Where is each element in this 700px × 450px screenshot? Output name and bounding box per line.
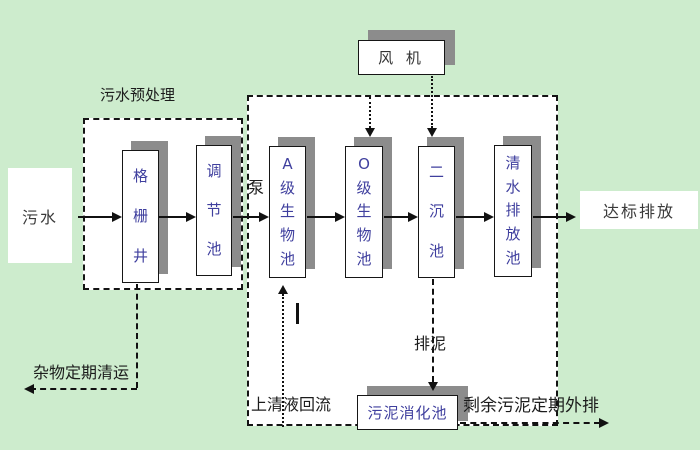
supernatant-return-head bbox=[278, 285, 288, 294]
arrow-a-to-o-head bbox=[335, 212, 345, 222]
arrow-grid-to-regulating-head bbox=[186, 212, 196, 222]
pipe-tick-mark bbox=[296, 303, 299, 324]
debris-removal-hline bbox=[30, 388, 137, 390]
arrow-grid-to-regulating-line bbox=[159, 216, 187, 218]
excess-sludge-label: 剩余污泥定期外排 bbox=[463, 397, 599, 417]
excess-sludge-head bbox=[599, 418, 609, 428]
supernatant-return-label: 上清液回流 bbox=[251, 396, 331, 414]
air-line-to-o-bio bbox=[369, 97, 371, 128]
arrow-clarifier-to-clearwater-head bbox=[484, 212, 494, 222]
arrow-regulating-to-a-line bbox=[233, 216, 260, 218]
pump-label: 泵 bbox=[248, 179, 264, 197]
air-line-to-clarifier bbox=[431, 76, 433, 128]
air-line-to-o-bio-head bbox=[365, 128, 375, 137]
arrow-influent-to-grid-line bbox=[78, 216, 113, 218]
arrow-clearwater-to-discharge-head bbox=[566, 212, 576, 222]
tank-grid-well: 格栅井 bbox=[122, 150, 159, 283]
process-flow-diagram: 污水预处理 污水 达标排放 风 机 格栅井 调节池 A级生物池 O级生物池 二沉… bbox=[0, 0, 700, 450]
debris-removal-label: 杂物定期清运 bbox=[33, 364, 129, 382]
sludge-drain-label: 排泥 bbox=[414, 335, 446, 353]
tank-sludge-digester: 污泥消化池 bbox=[357, 395, 458, 430]
arrow-o-to-clarifier-line bbox=[384, 216, 409, 218]
sludge-drain-head bbox=[428, 382, 438, 391]
influent-box: 污水 bbox=[8, 168, 72, 263]
arrow-a-to-o-line bbox=[307, 216, 336, 218]
sludge-drain-line bbox=[432, 279, 434, 382]
tank-clear-water: 清水排放池 bbox=[494, 145, 532, 277]
discharge-box: 达标排放 bbox=[580, 191, 698, 229]
tank-a-bio: A级生物池 bbox=[269, 146, 306, 278]
arrow-influent-to-grid-head bbox=[112, 212, 122, 222]
air-line-to-clarifier-head bbox=[427, 128, 437, 137]
debris-removal-vline bbox=[136, 284, 138, 388]
arrow-o-to-clarifier-head bbox=[408, 212, 418, 222]
blower-box: 风 机 bbox=[358, 40, 445, 75]
debris-removal-head bbox=[24, 384, 34, 394]
tank-o-bio: O级生物池 bbox=[345, 146, 383, 278]
excess-sludge-line bbox=[460, 422, 600, 424]
arrow-regulating-to-a-head bbox=[259, 212, 269, 222]
arrow-clearwater-to-discharge-line bbox=[533, 216, 567, 218]
arrow-clarifier-to-clearwater-line bbox=[456, 216, 485, 218]
tank-secondary-clarifier: 二沉池 bbox=[418, 146, 455, 278]
tank-regulating: 调节池 bbox=[196, 145, 232, 276]
pretreatment-zone-label: 污水预处理 bbox=[100, 87, 175, 104]
